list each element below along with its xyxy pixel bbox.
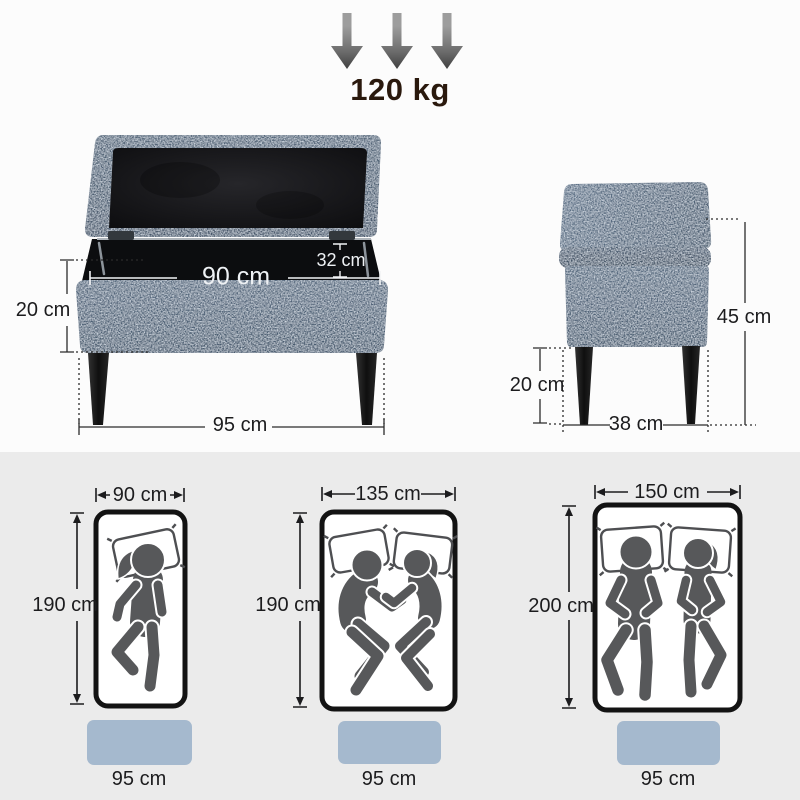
front-interior-depth-label: 32 cm (316, 251, 365, 269)
bed3-bench-width-label: 95 cm (641, 769, 695, 789)
bed-diagram-double (293, 487, 457, 764)
front-base-height-label: 20 cm (16, 300, 70, 320)
side-overall-height-label: 45 cm (717, 307, 771, 327)
side-leg-back (682, 346, 700, 424)
diagram-graphics (0, 0, 800, 800)
bed2-width-label: 135 cm (355, 484, 421, 504)
bed1-width-label: 90 cm (113, 485, 167, 505)
bench-position-marker (87, 720, 192, 765)
side-base (565, 266, 709, 347)
bed3-width-label: 150 cm (634, 482, 700, 502)
hinge-right (329, 231, 355, 240)
bed3-length-label: 200 cm (528, 596, 594, 616)
bed2-length-label: 190 cm (255, 595, 321, 615)
bench-side-view (559, 182, 711, 425)
hinge-left (108, 231, 134, 240)
front-overall-width-label: 95 cm (213, 415, 267, 435)
bench-position-marker (338, 721, 441, 764)
seat-top (560, 182, 711, 252)
side-leg-front (575, 347, 593, 425)
side-leg-height-label: 20 cm (510, 375, 564, 395)
bed2-bench-width-label: 95 cm (362, 769, 416, 789)
bed-diagram-single (70, 488, 192, 765)
bed-diagram-king (562, 485, 740, 765)
front-interior-width-label: 90 cm (202, 265, 270, 290)
front-leg-left (88, 353, 109, 425)
load-arrows-icon (331, 13, 463, 69)
bed1-length-label: 190 cm (32, 595, 98, 615)
bed1-bench-width-label: 95 cm (112, 769, 166, 789)
side-depth-label: 38 cm (609, 414, 663, 434)
weight-capacity-label: 120 kg (350, 72, 450, 108)
product-dimension-infographic: 120 kg 90 cm 32 cm 20 cm 95 cm 45 cm 20 … (0, 0, 800, 800)
lid-lip (559, 247, 711, 268)
bench-position-marker (617, 721, 720, 765)
bench-base (76, 280, 388, 353)
front-leg-right (356, 353, 377, 425)
